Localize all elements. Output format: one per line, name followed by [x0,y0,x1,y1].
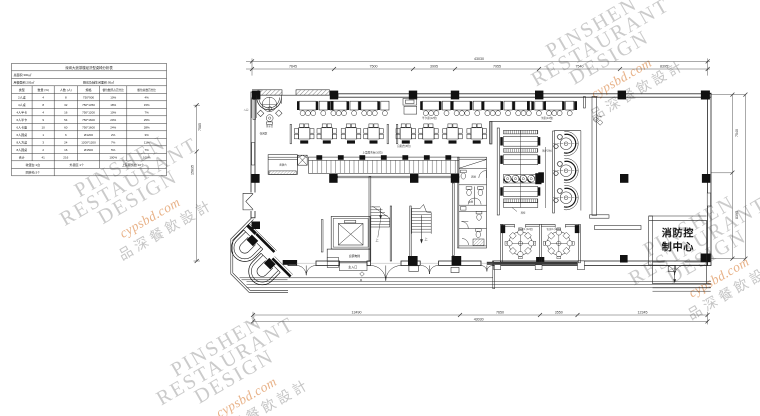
svg-text:1200*1200: 1200*1200 [81,141,96,145]
svg-text:数量 (%): 数量 (%) [37,87,49,92]
svg-text:7500: 7500 [370,64,378,68]
svg-text:7%: 7% [145,111,150,115]
svg-text:5%: 5% [111,148,116,152]
svg-text:6人半卡: 6人半卡 [16,117,27,122]
svg-text:合计: 合计 [19,155,25,160]
svg-text:规格: 规格 [85,87,91,92]
svg-text:备餐台: 备餐台 [279,163,287,167]
svg-text:10%: 10% [110,111,116,115]
svg-text:消防控: 消防控 [662,226,694,239]
svg-text:7955: 7955 [493,64,501,68]
svg-text:3550: 3550 [555,311,563,315]
svg-text:54: 54 [64,118,68,122]
svg-text:总面积:300㎡: 总面积:300㎡ [14,72,32,77]
svg-text:6人圆桌: 6人圆桌 [16,132,27,137]
svg-text:入口: 入口 [244,108,249,112]
svg-text:上菜服务台(10位): 上菜服务台(10位) [362,151,382,155]
svg-text:20%: 20% [110,118,116,122]
svg-text:7645: 7645 [289,64,297,68]
svg-text:2人桌: 2人桌 [18,95,26,100]
svg-text:6人卡座: 6人卡座 [16,125,27,130]
svg-text:216: 216 [63,156,68,160]
svg-text:100%: 100% [109,156,117,160]
svg-text:餐位总数百分比: 餐位总数百分比 [137,88,156,92]
svg-text:厨房及辅生间面积:95㎡: 厨房及辅生间面积:95㎡ [83,80,114,85]
svg-text:7650: 7650 [496,311,504,315]
svg-text:4人半卡: 4人半卡 [16,110,27,115]
svg-text:上菜服务台:10个: 上菜服务台:10个 [122,162,144,167]
svg-text:8395: 8395 [660,64,668,68]
svg-text:回转椅:3个: 回转椅:3个 [26,170,41,175]
svg-text:60: 60 [64,126,68,130]
svg-text:100%: 100% [143,156,151,160]
svg-text:4%: 4% [145,96,150,100]
svg-text:750*1600: 750*1600 [82,118,95,122]
svg-text:收银台:1台: 收银台:1台 [26,162,41,167]
svg-text:男厕: 男厕 [471,174,477,178]
svg-text:Ø1500: Ø1500 [84,148,93,152]
svg-text:41: 41 [42,156,46,160]
svg-text:43030: 43030 [474,317,484,321]
svg-text:Ø1200: Ø1200 [84,133,93,137]
svg-text:类型: 类型 [19,87,25,92]
svg-text:7%: 7% [111,141,116,145]
svg-text:10: 10 [42,126,46,130]
svg-text:7540: 7540 [735,129,739,137]
svg-text:11%: 11% [144,141,150,145]
svg-text:750*1600: 750*1600 [82,126,95,130]
svg-text:15%: 15% [144,103,150,107]
svg-text:制中心: 制中心 [662,241,694,254]
svg-text:半卡座(12位): 半卡座(12位) [422,116,437,120]
svg-text:12345: 12345 [638,311,648,315]
svg-text:包房2 (12位): 包房2 (12位) [546,227,560,231]
svg-text:13490: 13490 [352,311,362,315]
svg-text:18%: 18% [110,103,116,107]
svg-text:750*900: 750*900 [83,96,95,100]
svg-text:28%: 28% [144,126,150,130]
svg-text:7%: 7% [145,148,150,152]
svg-text:750*1200: 750*1200 [82,111,95,115]
svg-text:人数 (人): 人数 (人) [60,87,72,92]
svg-text:8人方桌: 8人方桌 [16,140,27,145]
svg-text:3995: 3995 [430,64,438,68]
svg-text:卡座(14位): 卡座(14位) [541,116,554,120]
svg-text:迎宾电梯: 迎宾电梯 [349,254,360,258]
svg-text:10%: 10% [110,96,116,100]
svg-text:餐位数所占百分比: 餐位数所占百分比 [102,88,124,92]
svg-text:15835: 15835 [190,165,194,175]
svg-text:24: 24 [64,141,68,145]
svg-text:24%: 24% [110,126,116,130]
svg-text:3%: 3% [145,133,150,137]
svg-text:8395: 8395 [735,211,739,219]
svg-text:自助台(6位): 自助台(6位) [397,144,411,148]
svg-text:2%: 2% [111,133,116,137]
svg-text:7585: 7585 [198,123,202,131]
svg-text:外卖区:1个: 外卖区:1个 [70,162,85,167]
svg-text:25%: 25% [144,118,150,122]
svg-text:8人圆桌: 8人圆桌 [16,147,27,152]
svg-text:蒸柜: 蒸柜 [521,210,526,214]
svg-text:主入口: 主入口 [348,264,357,269]
svg-text:深圳大浪茶楼经济型桌椅分析表: 深圳大浪茶楼经济型桌椅分析表 [65,65,113,70]
svg-text:7540: 7540 [576,64,584,68]
svg-text:16: 16 [64,111,68,115]
svg-text:32: 32 [64,103,68,107]
svg-text:休闲区: 休闲区 [260,131,268,135]
svg-text:用餐面积:205㎡: 用餐面积:205㎡ [14,80,35,85]
svg-text:16: 16 [64,148,68,152]
svg-text:750*1350: 750*1350 [82,103,95,107]
svg-text:43030: 43030 [474,57,484,61]
svg-text:包房1 (12位): 包房1 (12位) [519,227,533,231]
svg-text:茶水台: 茶水台 [266,124,274,128]
svg-text:4人桌: 4人桌 [18,102,26,107]
